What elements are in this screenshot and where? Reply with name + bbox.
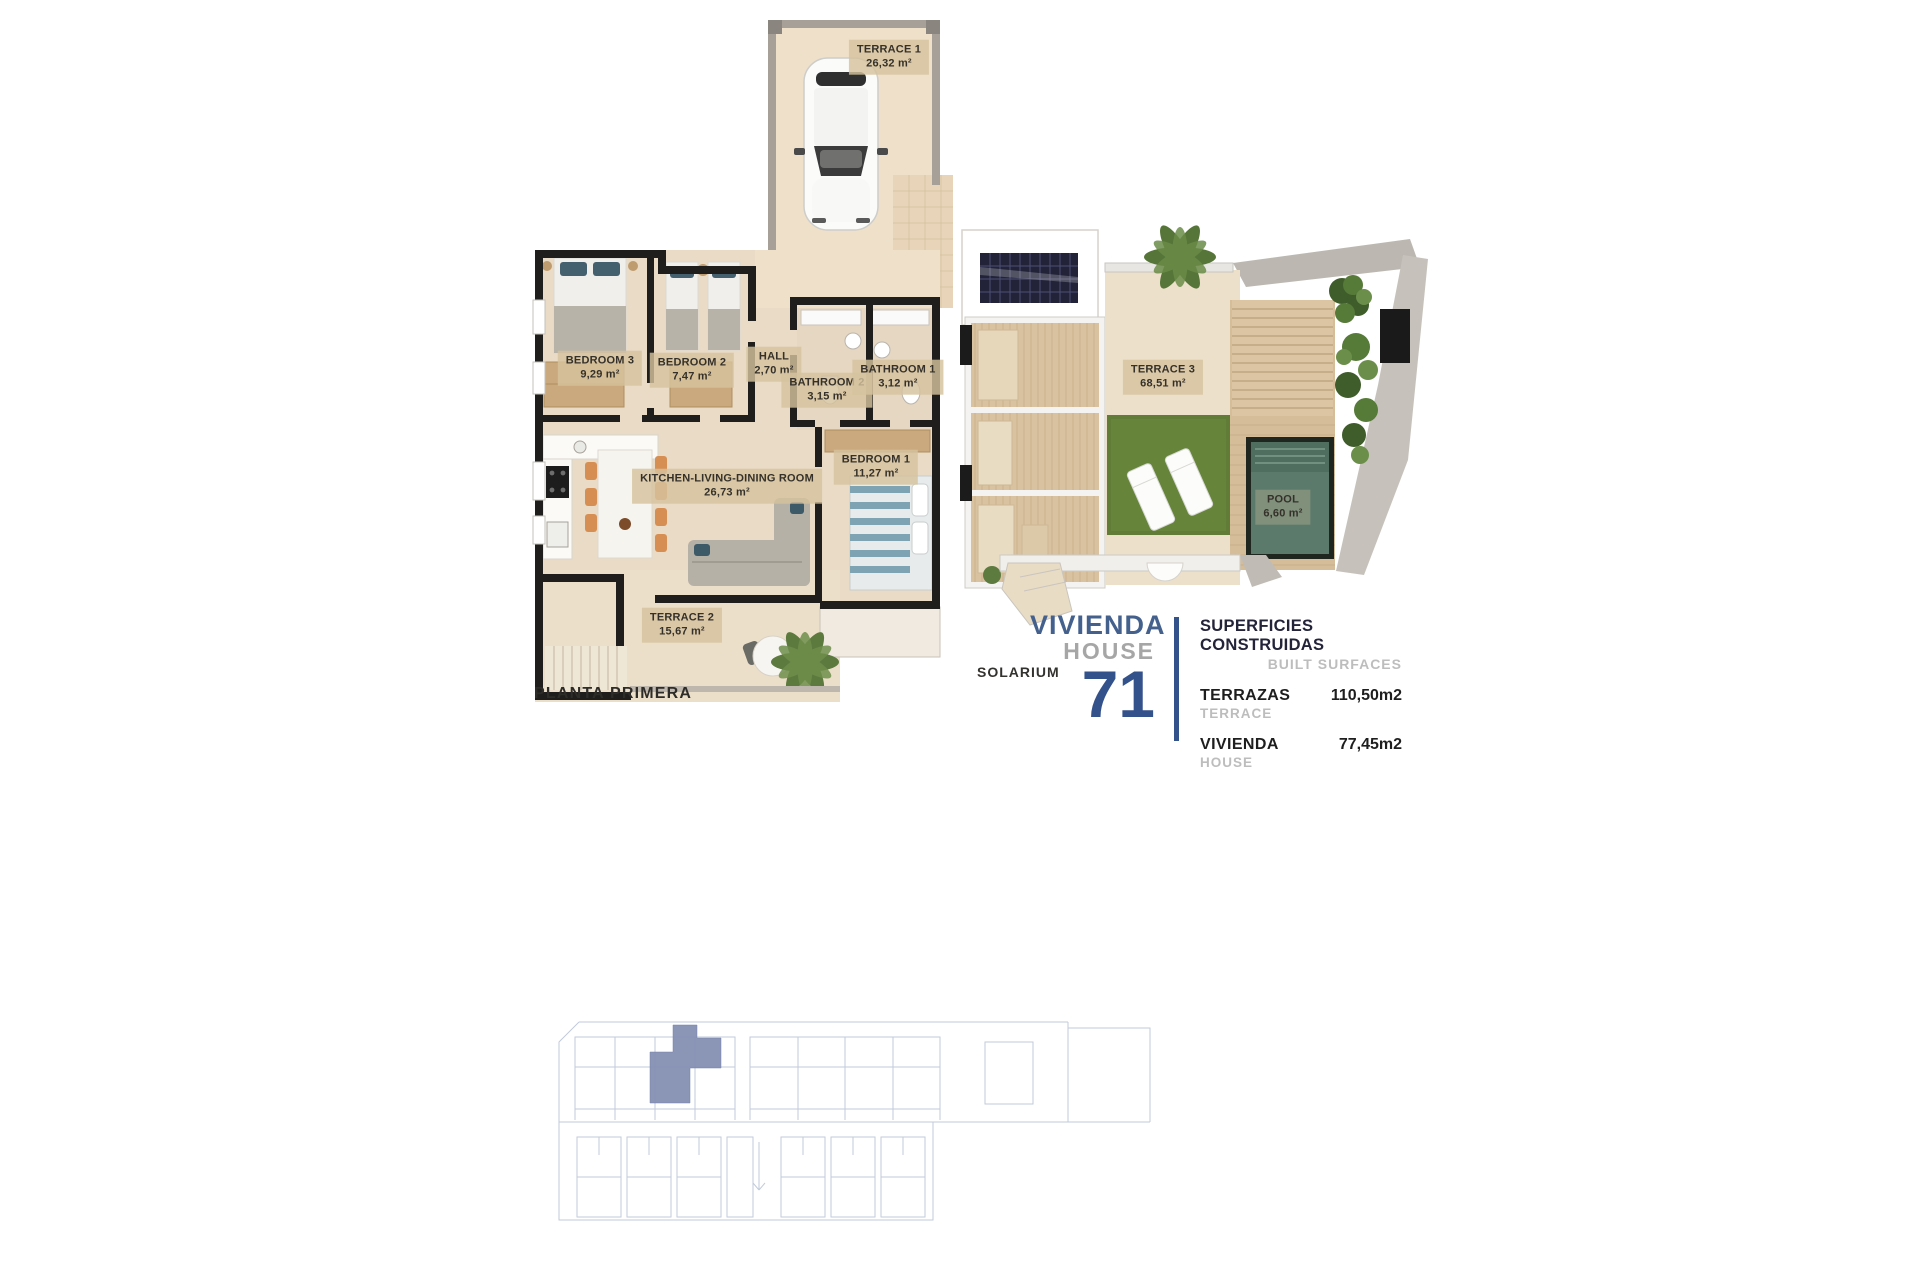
label-kitchen: KITCHEN-LIVING-DINING ROOM26,73 m² (632, 469, 822, 504)
label-bathroom1: BATHROOM 13,12 m² (852, 360, 943, 395)
unit-vivienda-label: VIVIENDA (1030, 612, 1155, 639)
vivienda-label: VIVIENDA (1200, 736, 1279, 754)
surfaces-title-es: SUPERFICIES CONSTRUIDAS (1200, 617, 1402, 655)
label-terrace2: TERRACE 215,67 m² (642, 608, 722, 643)
terrazas-value: 110,50m2 (1331, 687, 1402, 705)
house-sublabel: HOUSE (1200, 755, 1402, 770)
label-bedroom2: BEDROOM 27,47 m² (650, 353, 734, 388)
terrace-sublabel: TERRACE (1200, 706, 1402, 721)
terrazas-label: TERRAZAS (1200, 687, 1290, 705)
label-terrace1: TERRACE 126,32 m² (849, 40, 929, 75)
grass-area (1107, 415, 1230, 535)
surfaces-block: SUPERFICIES CONSTRUIDAS BUILT SURFACES T… (1200, 617, 1402, 770)
surfaces-row-terrazas: TERRAZAS 110,50m2 TERRACE (1200, 687, 1402, 721)
floor-plan-sheet: TERRACE 126,32 m² BEDROOM 39,29 m² BEDRO… (0, 0, 1920, 1280)
plan-title-planta-primera: PLANTA PRIMERA (534, 685, 692, 703)
solar-panel-roof (962, 230, 1098, 325)
site-plan (545, 1012, 1165, 1242)
label-bedroom1: BEDROOM 111,27 m² (834, 450, 918, 485)
stairs (545, 646, 627, 690)
surfaces-row-vivienda: VIVIENDA 77,45m2 HOUSE (1200, 736, 1402, 770)
solarium-drawing (960, 225, 1430, 645)
label-terrace3: TERRACE 368,51 m² (1123, 360, 1203, 395)
vivienda-value: 77,45m2 (1339, 736, 1402, 754)
label-bedroom3: BEDROOM 39,29 m² (558, 351, 642, 386)
wall-band-top (1233, 239, 1420, 287)
deck-rooms (960, 317, 1105, 588)
surfaces-title-en: BUILT SURFACES (1200, 656, 1402, 672)
unit-title-block: VIVIENDA HOUSE 71 (1030, 612, 1155, 723)
unit-number: 71 (1030, 665, 1155, 723)
ac-unit (1380, 309, 1410, 363)
divider-line (1174, 617, 1179, 741)
car-icon (794, 58, 888, 230)
label-pool: POOL6,60 m² (1255, 490, 1310, 525)
